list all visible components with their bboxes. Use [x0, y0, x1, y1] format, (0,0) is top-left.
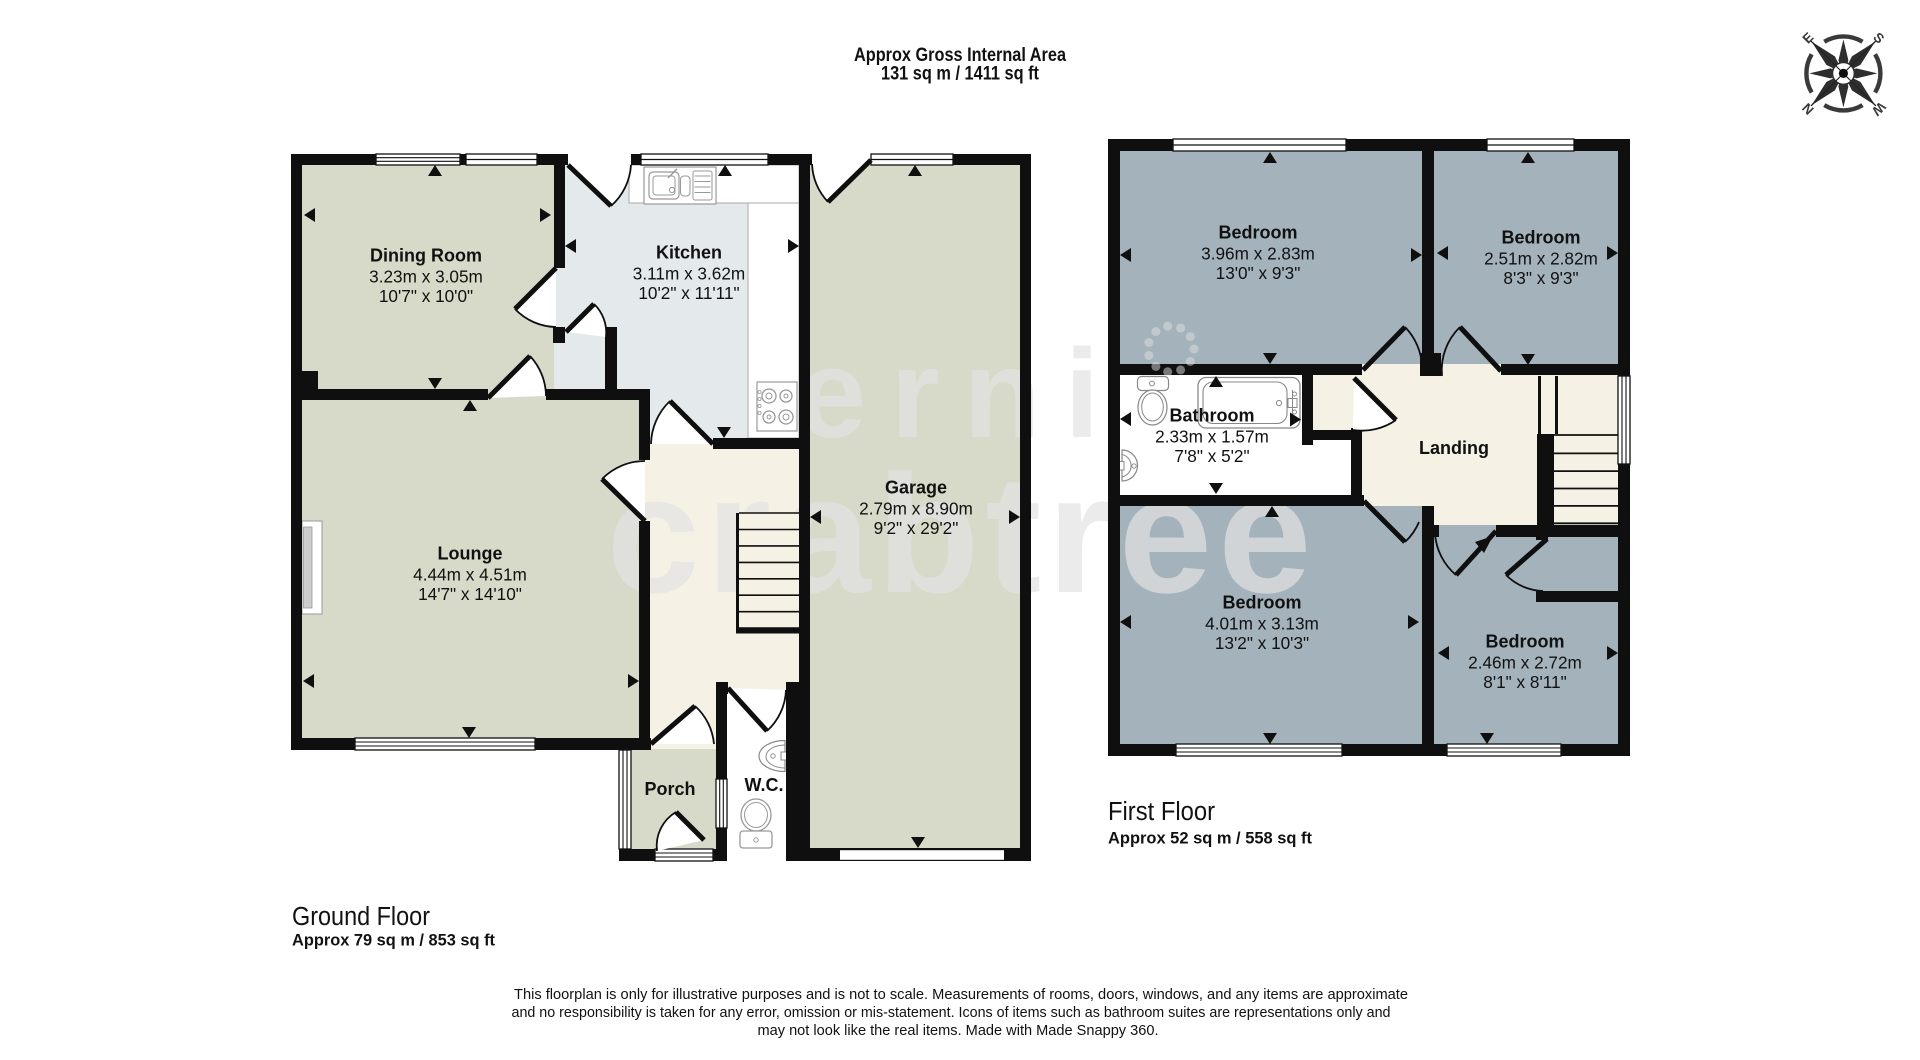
svg-text:W.C.: W.C.: [745, 775, 784, 795]
svg-text:2.33m x 1.57m: 2.33m x 1.57m: [1155, 427, 1269, 447]
svg-text:Dining Room: Dining Room: [370, 246, 482, 266]
svg-text:7'8" x 5'2": 7'8" x 5'2": [1174, 446, 1249, 466]
svg-text:8'1" x 8'11": 8'1" x 8'11": [1483, 672, 1566, 692]
svg-text:First Floor: First Floor: [1108, 798, 1215, 826]
svg-text:8'3" x 9'3": 8'3" x 9'3": [1503, 268, 1578, 288]
svg-text:Approx 52 sq m / 558 sq ft: Approx 52 sq m / 558 sq ft: [1108, 829, 1312, 848]
svg-text:and no responsibility is taken: and no responsibility is taken for any e…: [512, 1004, 1391, 1021]
svg-text:Bedroom: Bedroom: [1501, 228, 1580, 248]
svg-text:3.23m x 3.05m: 3.23m x 3.05m: [369, 267, 483, 287]
svg-text:2.79m x 8.90m: 2.79m x 8.90m: [859, 499, 973, 519]
svg-text:3.11m x 3.62m: 3.11m x 3.62m: [633, 264, 745, 284]
svg-text:2.51m x 2.82m: 2.51m x 2.82m: [1484, 249, 1598, 269]
svg-text:Approx 79 sq m / 853 sq ft: Approx 79 sq m / 853 sq ft: [292, 931, 495, 950]
svg-text:Kitchen: Kitchen: [656, 243, 722, 263]
svg-text:Bedroom: Bedroom: [1222, 593, 1301, 613]
svg-text:Garage: Garage: [885, 478, 947, 498]
svg-text:Landing: Landing: [1419, 438, 1489, 458]
svg-text:4.01m x 3.13m: 4.01m x 3.13m: [1205, 614, 1319, 634]
svg-text:Bedroom: Bedroom: [1218, 223, 1297, 243]
svg-text:13'0" x 9'3": 13'0" x 9'3": [1216, 263, 1301, 283]
svg-text:Porch: Porch: [644, 779, 695, 799]
svg-text:Bathroom: Bathroom: [1170, 406, 1255, 426]
svg-text:9'2" x 29'2": 9'2" x 29'2": [874, 518, 959, 538]
svg-text:3.96m x 2.83m: 3.96m x 2.83m: [1201, 244, 1315, 264]
svg-text:crabtree: crabtree: [606, 440, 1317, 628]
svg-text:131 sq m / 1411 sq ft: 131 sq m / 1411 sq ft: [881, 64, 1040, 85]
svg-text:4.44m x 4.51m: 4.44m x 4.51m: [413, 565, 527, 585]
svg-text:2.46m x 2.72m: 2.46m x 2.72m: [1468, 653, 1582, 673]
svg-text:14'7" x 14'10": 14'7" x 14'10": [418, 584, 522, 604]
svg-text:10'7" x 10'0": 10'7" x 10'0": [379, 286, 473, 306]
svg-text:may not look like the real ite: may not look like the real items. Made w…: [758, 1022, 1159, 1039]
svg-text:13'2" x 10'3": 13'2" x 10'3": [1215, 633, 1309, 653]
svg-text:Lounge: Lounge: [438, 544, 503, 564]
svg-text:10'2" x 11'11": 10'2" x 11'11": [638, 283, 739, 303]
svg-text:Bedroom: Bedroom: [1485, 632, 1564, 652]
svg-text:Ground Floor: Ground Floor: [292, 903, 430, 931]
svg-text:This floorplan is only for ill: This floorplan is only for illustrative …: [514, 986, 1408, 1003]
